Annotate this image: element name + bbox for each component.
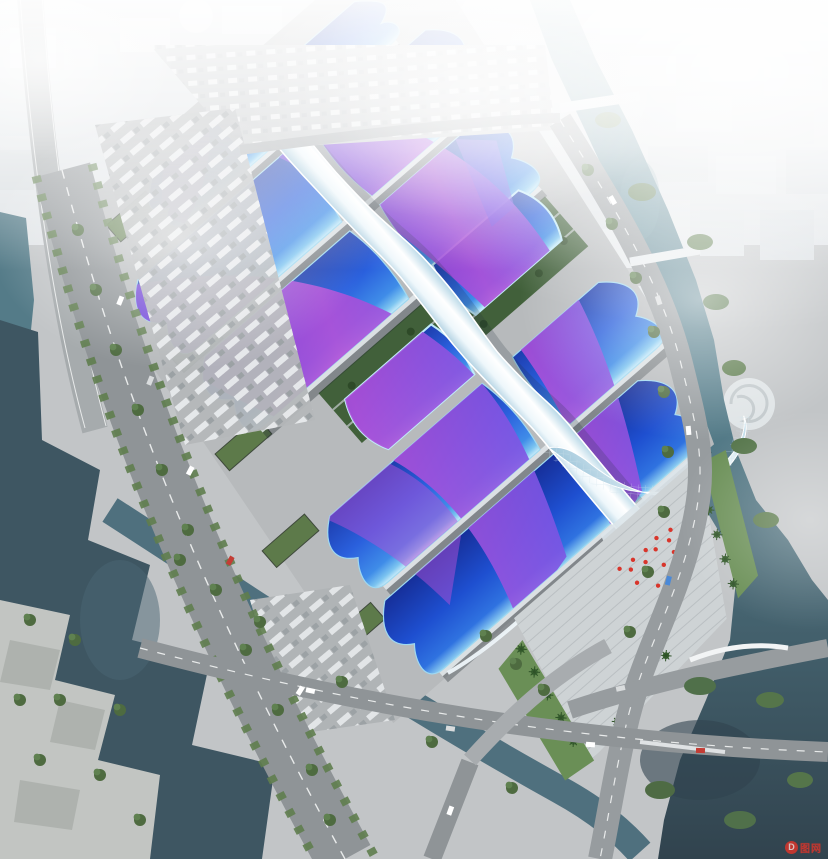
- watermark-text: 图网: [800, 840, 822, 855]
- watermark-logo: D 图网: [785, 840, 822, 855]
- watermark-d-icon: D: [785, 841, 798, 854]
- aerial-rendering-exhibition-center: D 图网: [0, 0, 828, 859]
- scene-canvas: [0, 0, 828, 859]
